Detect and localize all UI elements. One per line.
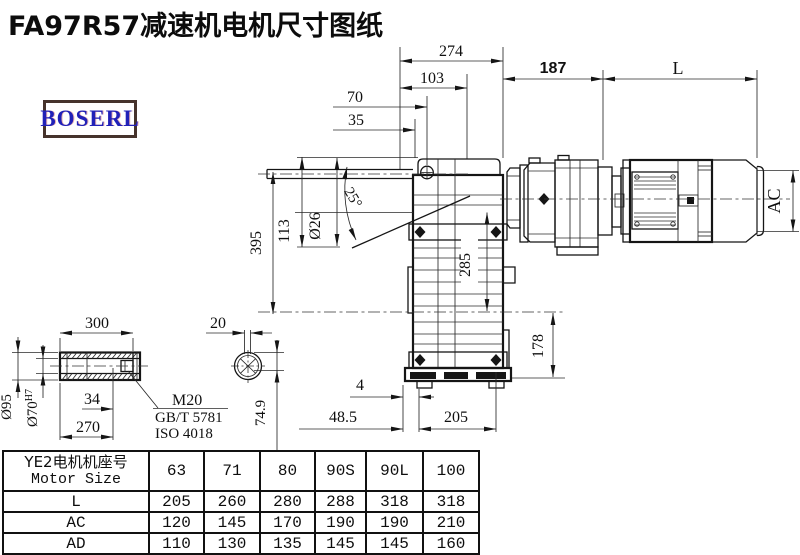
dim-AC: AC — [764, 188, 784, 213]
dim-dia95: Ø95 — [0, 394, 15, 420]
col-header: 100 — [423, 451, 479, 491]
cell: 145 — [315, 533, 366, 554]
brand-logo-text: BOSERL — [40, 106, 139, 132]
dim-205: 205 — [444, 409, 468, 426]
cell: 318 — [423, 491, 479, 512]
fan-cover-cap — [757, 167, 764, 236]
col-header: 90L — [366, 451, 423, 491]
col-header: 71 — [204, 451, 260, 491]
motor-size-table: YE2电机机座号 Motor Size 63 71 80 90S 90L 100… — [2, 450, 480, 555]
table-row-AC: AC 120 145 170 190 190 210 — [3, 512, 479, 533]
cell: 120 — [149, 512, 204, 533]
row-label: AC — [3, 512, 149, 533]
bolt-standard-gb: GB/T 5781 — [155, 410, 223, 426]
dim-48-5: 48.5 — [329, 409, 357, 426]
row-label: L — [3, 491, 149, 512]
gearbox-front-view: 274 103 70 35 — [248, 43, 565, 432]
dim-dia26: Ø26 — [307, 212, 324, 240]
motor-fins — [634, 166, 712, 236]
dim-270: 270 — [76, 419, 100, 436]
bolt-standard-iso: ISO 4018 — [155, 426, 213, 442]
col-header: 80 — [260, 451, 315, 491]
row-label: AD — [3, 533, 149, 554]
page-title: FA97R57减速机电机尺寸图纸 — [8, 4, 383, 43]
table-header-row: YE2电机机座号 Motor Size 63 71 80 90S 90L 100 — [3, 451, 479, 491]
table-header-cjk: YE2电机机座号 — [4, 453, 148, 471]
input-shaft — [258, 166, 468, 179]
cell: 160 — [423, 533, 479, 554]
dim-187: 187 — [540, 60, 567, 77]
dim-25deg: 25° — [340, 185, 365, 211]
dim-L: L — [673, 58, 684, 78]
cell: 145 — [204, 512, 260, 533]
cell: 170 — [260, 512, 315, 533]
table-header-motor-size: YE2电机机座号 Motor Size — [3, 451, 149, 491]
shaft-cross-section: 20 74.9 — [206, 315, 284, 450]
fan-cover — [712, 160, 757, 242]
reducer-unit — [507, 156, 612, 256]
cell: 145 — [366, 533, 423, 554]
motor-unit — [623, 160, 764, 242]
dim-dia70H7: Ø70H7 — [24, 389, 41, 427]
cell: 130 — [204, 533, 260, 554]
table-header-en: Motor Size — [4, 471, 148, 489]
cell: 205 — [149, 491, 204, 512]
dim-35: 35 — [348, 112, 364, 129]
cell: 318 — [366, 491, 423, 512]
dim-300: 300 — [85, 315, 109, 332]
brand-logo: BOSERL — [43, 100, 137, 138]
dim-395: 395 — [248, 231, 265, 255]
bolt-diamond — [415, 354, 426, 366]
dim-178: 178 — [530, 334, 547, 358]
cell: 190 — [315, 512, 366, 533]
bolt-diamond — [491, 354, 502, 366]
dim-34: 34 — [84, 391, 100, 408]
dim-74-9: 74.9 — [253, 400, 269, 426]
hollow-shaft-detail: 300 Ø95 Ø70H7 34 270 M20 GB/T 5781 ISO 4… — [0, 315, 228, 442]
dim-4: 4 — [356, 377, 364, 394]
cell: 135 — [260, 533, 315, 554]
dim-20: 20 — [210, 315, 226, 332]
drawing-sheet: 274 103 70 35 — [0, 0, 800, 555]
bolt-diamond — [415, 226, 426, 238]
table-row-L: L 205 260 280 288 318 318 — [3, 491, 479, 512]
dim-113: 113 — [276, 219, 293, 242]
cell: 110 — [149, 533, 204, 554]
table-row-AD: AD 110 130 135 145 145 160 — [3, 533, 479, 554]
cell: 210 — [423, 512, 479, 533]
dim-103: 103 — [420, 70, 444, 87]
dim-285: 285 — [457, 253, 474, 277]
bolt-diamond — [491, 226, 502, 238]
bolt-spec-label: M20 — [172, 392, 202, 409]
cell: 190 — [366, 512, 423, 533]
motor-side-view: 187 L — [500, 58, 799, 255]
dim-274: 274 — [439, 43, 463, 60]
cell: 288 — [315, 491, 366, 512]
dim-70: 70 — [347, 89, 363, 106]
cell: 280 — [260, 491, 315, 512]
cell: 260 — [204, 491, 260, 512]
col-header: 90S — [315, 451, 366, 491]
col-header: 63 — [149, 451, 204, 491]
